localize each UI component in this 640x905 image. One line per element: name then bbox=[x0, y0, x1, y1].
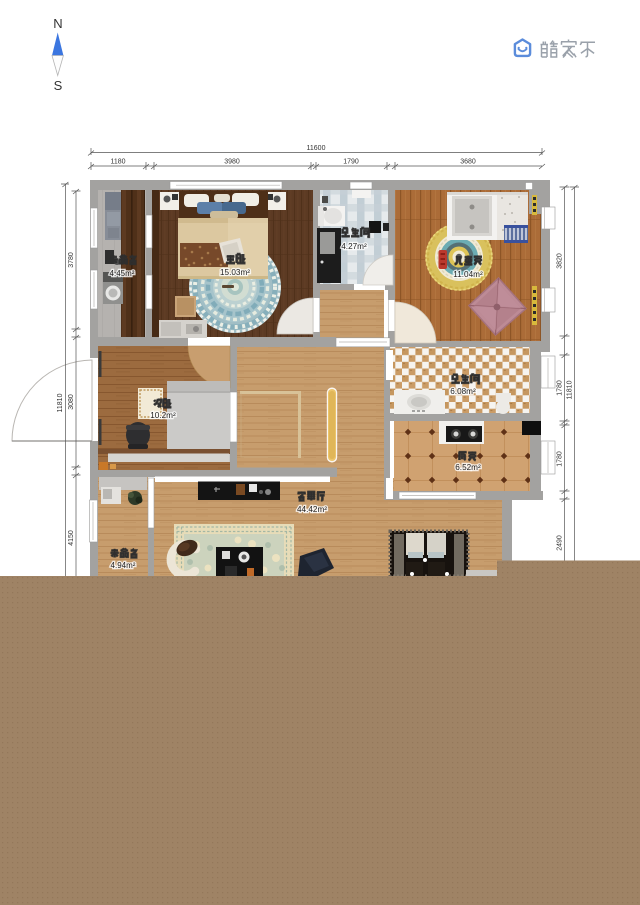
svg-text:11.04m²: 11.04m² bbox=[453, 270, 483, 279]
svg-text:3080: 3080 bbox=[68, 394, 75, 410]
svg-text:44.42m²: 44.42m² bbox=[297, 505, 327, 514]
svg-text:4150: 4150 bbox=[68, 530, 75, 546]
svg-text:4.94m²: 4.94m² bbox=[111, 561, 136, 570]
svg-text:15.03m²: 15.03m² bbox=[220, 268, 250, 277]
svg-text:1780: 1780 bbox=[557, 380, 564, 396]
svg-text:3820: 3820 bbox=[557, 253, 564, 269]
svg-text:10.2m²: 10.2m² bbox=[150, 411, 176, 420]
svg-text:1180: 1180 bbox=[110, 159, 125, 166]
svg-text:3680: 3680 bbox=[460, 159, 476, 166]
svg-text:3780: 3780 bbox=[68, 252, 75, 268]
svg-text:N: N bbox=[53, 16, 62, 31]
svg-text:11810: 11810 bbox=[567, 380, 574, 399]
svg-text:6.52m²: 6.52m² bbox=[455, 463, 481, 472]
svg-text:1780: 1780 bbox=[557, 451, 564, 467]
svg-text:4.27m²: 4.27m² bbox=[341, 242, 367, 251]
svg-text:11600: 11600 bbox=[307, 145, 326, 152]
svg-text:11810: 11810 bbox=[57, 393, 64, 412]
svg-text:2490: 2490 bbox=[557, 535, 564, 551]
svg-text:6.08m²: 6.08m² bbox=[450, 387, 476, 396]
svg-text:S: S bbox=[54, 78, 63, 93]
svg-text:4.45m²: 4.45m² bbox=[110, 269, 135, 278]
svg-text:3980: 3980 bbox=[224, 159, 240, 166]
svg-text:1790: 1790 bbox=[343, 159, 359, 166]
